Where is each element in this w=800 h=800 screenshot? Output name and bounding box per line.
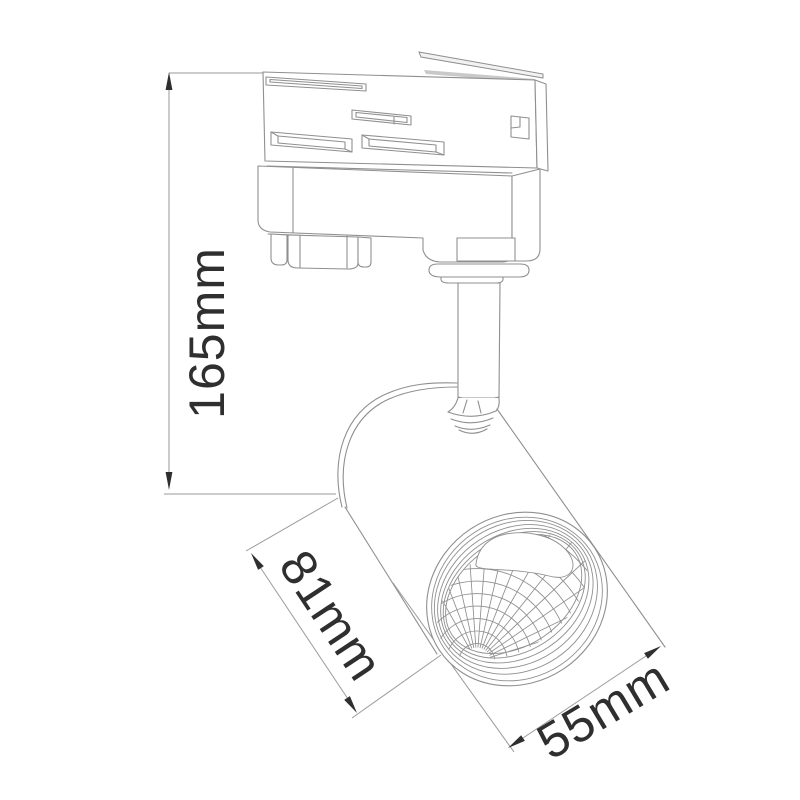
stem-flange-lip	[441, 277, 503, 283]
dim-body-length-label: 81mm	[268, 541, 394, 691]
track-adapter	[263, 52, 548, 173]
dimension-drawing-canvas: 165mm 81mm 55mm	[0, 0, 800, 800]
terminal-stubs	[268, 234, 371, 269]
adapter-lower-body	[258, 166, 540, 283]
arrowhead-165-down	[166, 472, 173, 490]
extension-line-81-top	[246, 498, 338, 551]
dim-overall-height-label: 165mm	[179, 247, 235, 419]
arrowhead-55-left	[508, 735, 525, 748]
head-back-rim-inner	[343, 387, 457, 508]
dimension-body-length: 81mm	[246, 498, 441, 718]
stem-flange	[429, 264, 529, 277]
lower-body-side	[512, 169, 540, 261]
adapter-side-face	[535, 80, 548, 171]
arrowhead-81-upper	[251, 553, 264, 570]
arrowhead-81-lower	[344, 696, 357, 713]
stem-shaft	[458, 283, 500, 398]
stem	[448, 283, 500, 433]
yoke-block	[457, 238, 515, 261]
head-back-rim-outer	[338, 383, 457, 507]
track-light-diagram: 165mm 81mm 55mm	[0, 0, 800, 800]
arrowhead-165-up	[166, 72, 173, 90]
adapter-front-face	[263, 72, 537, 168]
